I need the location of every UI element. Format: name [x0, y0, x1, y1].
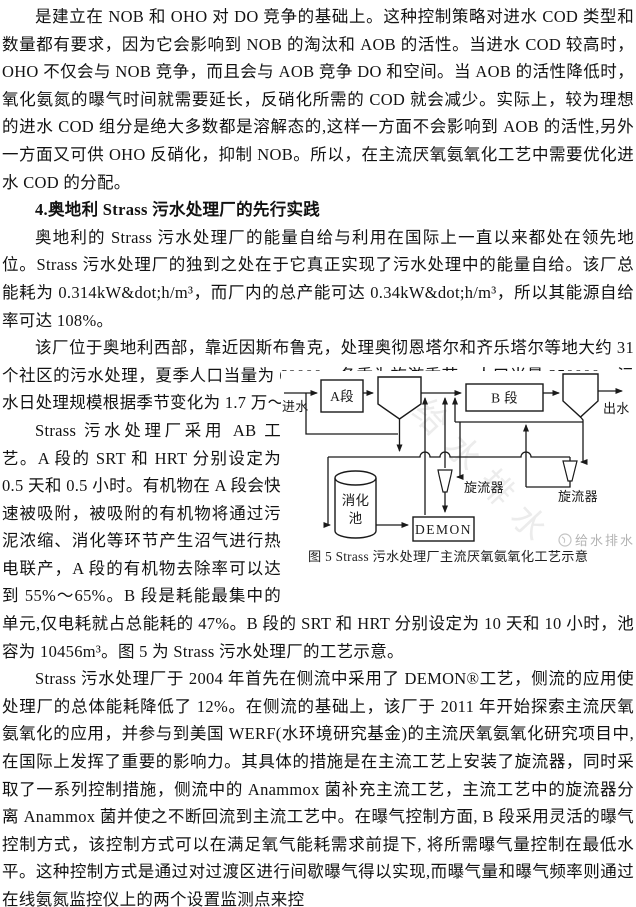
b-stage-label: B 段: [491, 390, 518, 405]
process-flow-svg: 给水排水: [281, 371, 634, 597]
digester-feed-line: [328, 457, 330, 525]
digester-label-line2: 池: [349, 511, 363, 526]
paragraph-energy-selfsufficiency: 奥地利的 Strass 污水处理厂的能量自给与利用在国际上一直以来都处在领先地位…: [2, 224, 634, 334]
clarifier2-shape: [563, 374, 598, 417]
process-flow-diagram: 给水排水: [281, 371, 634, 597]
clarifier2-underflow: [581, 417, 584, 462]
demon-label: DEMON: [415, 522, 472, 537]
paragraph-cod-competition: 是建立在 NOB 和 OHO 对 DO 竞争的基础上。这种控制策略对进水 COD…: [2, 3, 634, 196]
cyclone-mid-label: 旋流器: [464, 480, 504, 495]
figure-float-anchor: 给水排水: [281, 417, 634, 599]
cyclone-right-label: 旋流器: [558, 489, 598, 504]
influent-label: 进水: [282, 399, 309, 414]
svg-text:给水排水: 给水排水: [575, 533, 634, 548]
watermark-corner: 给水排水: [559, 533, 634, 548]
effluent-label: 出水: [603, 401, 630, 416]
a-stage-label: A段: [330, 389, 354, 404]
paragraph-demon-sidestream: Strass 污水处理厂于 2004 年首先在侧流中采用了 DEMON®工艺，侧…: [2, 665, 634, 907]
digester-label-line1: 消化: [342, 493, 370, 508]
right-cyclone-loop: [526, 481, 570, 487]
section-heading: 4.奥地利 Strass 污水处理厂的先行实践: [2, 196, 634, 224]
document-page: 是建立在 NOB 和 OHO 对 DO 竞争的基础上。这种控制策略对进水 COD…: [0, 0, 636, 907]
cyclone-mid-shape: [438, 470, 452, 492]
figure-caption: 图 5 Strass 污水处理厂主流厌氧氨氧化工艺示意: [308, 548, 588, 564]
cyclone-right-shape: [563, 461, 577, 481]
